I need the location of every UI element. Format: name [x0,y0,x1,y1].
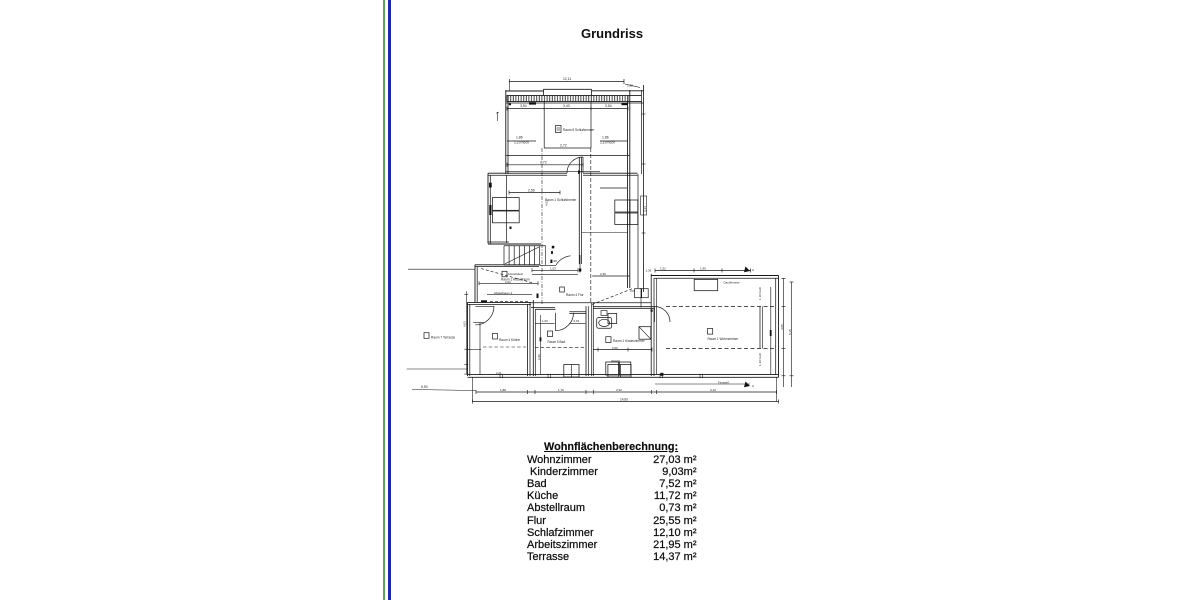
svg-text:1,99: 1,99 [700,267,706,271]
svg-text:1,86: 1,86 [516,136,523,140]
svg-text:Raum 7 Terrasse: Raum 7 Terrasse [431,335,455,339]
svg-text:2,72: 2,72 [560,144,567,148]
svg-text:12,11: 12,11 [563,77,571,81]
svg-text:Abstellraum 2: Abstellraum 2 [494,291,513,295]
svg-text:Raum 4 Küche: Raum 4 Küche [499,338,520,342]
svg-text:Raum 1 Schlafzimmer: Raum 1 Schlafzimmer [545,198,577,202]
svg-text:A: A [752,384,754,388]
svg-text:2,35: 2,35 [627,84,633,88]
svg-text:4,63: 4,63 [545,200,549,206]
svg-text:1,10 hoch: 1,10 hoch [514,141,529,145]
svg-text:1,36: 1,36 [646,269,652,273]
svg-text:1,88: 1,88 [500,388,506,392]
svg-text:3,54: 3,54 [520,104,527,108]
svg-text:4,03: 4,03 [463,321,467,327]
svg-text:1,76: 1,76 [558,388,564,392]
svg-text:2,52: 2,52 [616,388,622,392]
svg-text:Raum 5 Bad: Raum 5 Bad [548,340,566,344]
svg-text:1,03: 1,03 [550,267,556,271]
svg-text:3,10: 3,10 [710,388,716,392]
svg-text:1,52: 1,52 [660,267,666,271]
svg-text:1,10 hoch: 1,10 hoch [758,286,762,300]
svg-text:Raum 1 Kinderzimmer: Raum 1 Kinderzimmer [613,339,646,343]
svg-text:2,01: 2,01 [496,371,502,375]
svg-text:14,60: 14,60 [620,397,628,401]
svg-text:Fensterfl.: Fensterfl. [718,380,730,384]
svg-text:1,86: 1,86 [602,136,609,140]
svg-text:2,35: 2,35 [600,272,606,276]
svg-text:A: A [752,268,754,272]
svg-text:6,90: 6,90 [421,385,428,389]
svg-text:2,72: 2,72 [540,161,547,165]
svg-text:2,56: 2,56 [528,189,535,193]
svg-text:Raum 6 Schlafzimmer: Raum 6 Schlafzimmer [563,128,595,132]
svg-text:0,61: 0,61 [574,319,580,323]
svg-text:Dachfenster: Dachfenster [724,281,740,285]
svg-text:Raum 1 Wohnzimmer: Raum 1 Wohnzimmer [708,337,740,341]
svg-text:3,43: 3,43 [563,104,570,108]
svg-text:4,34: 4,34 [643,206,647,212]
svg-text:2,02: 2,02 [505,280,511,284]
svg-text:1,00: 1,00 [542,319,548,323]
svg-text:3,54: 3,54 [605,104,612,108]
svg-text:Abstellplatz: Abstellplatz [508,272,524,276]
svg-text:1,10 hoch: 1,10 hoch [600,141,615,145]
svg-text:2,06: 2,06 [612,346,618,350]
svg-text:5,15: 5,15 [788,329,792,335]
svg-text:2,96: 2,96 [537,354,541,360]
svg-text:1,98: 1,98 [551,259,557,263]
svg-text:1,10 hoch: 1,10 hoch [758,352,762,366]
svg-text:Raum 4 Flur: Raum 4 Flur [566,293,584,297]
svg-text:4,05: 4,05 [780,324,784,330]
